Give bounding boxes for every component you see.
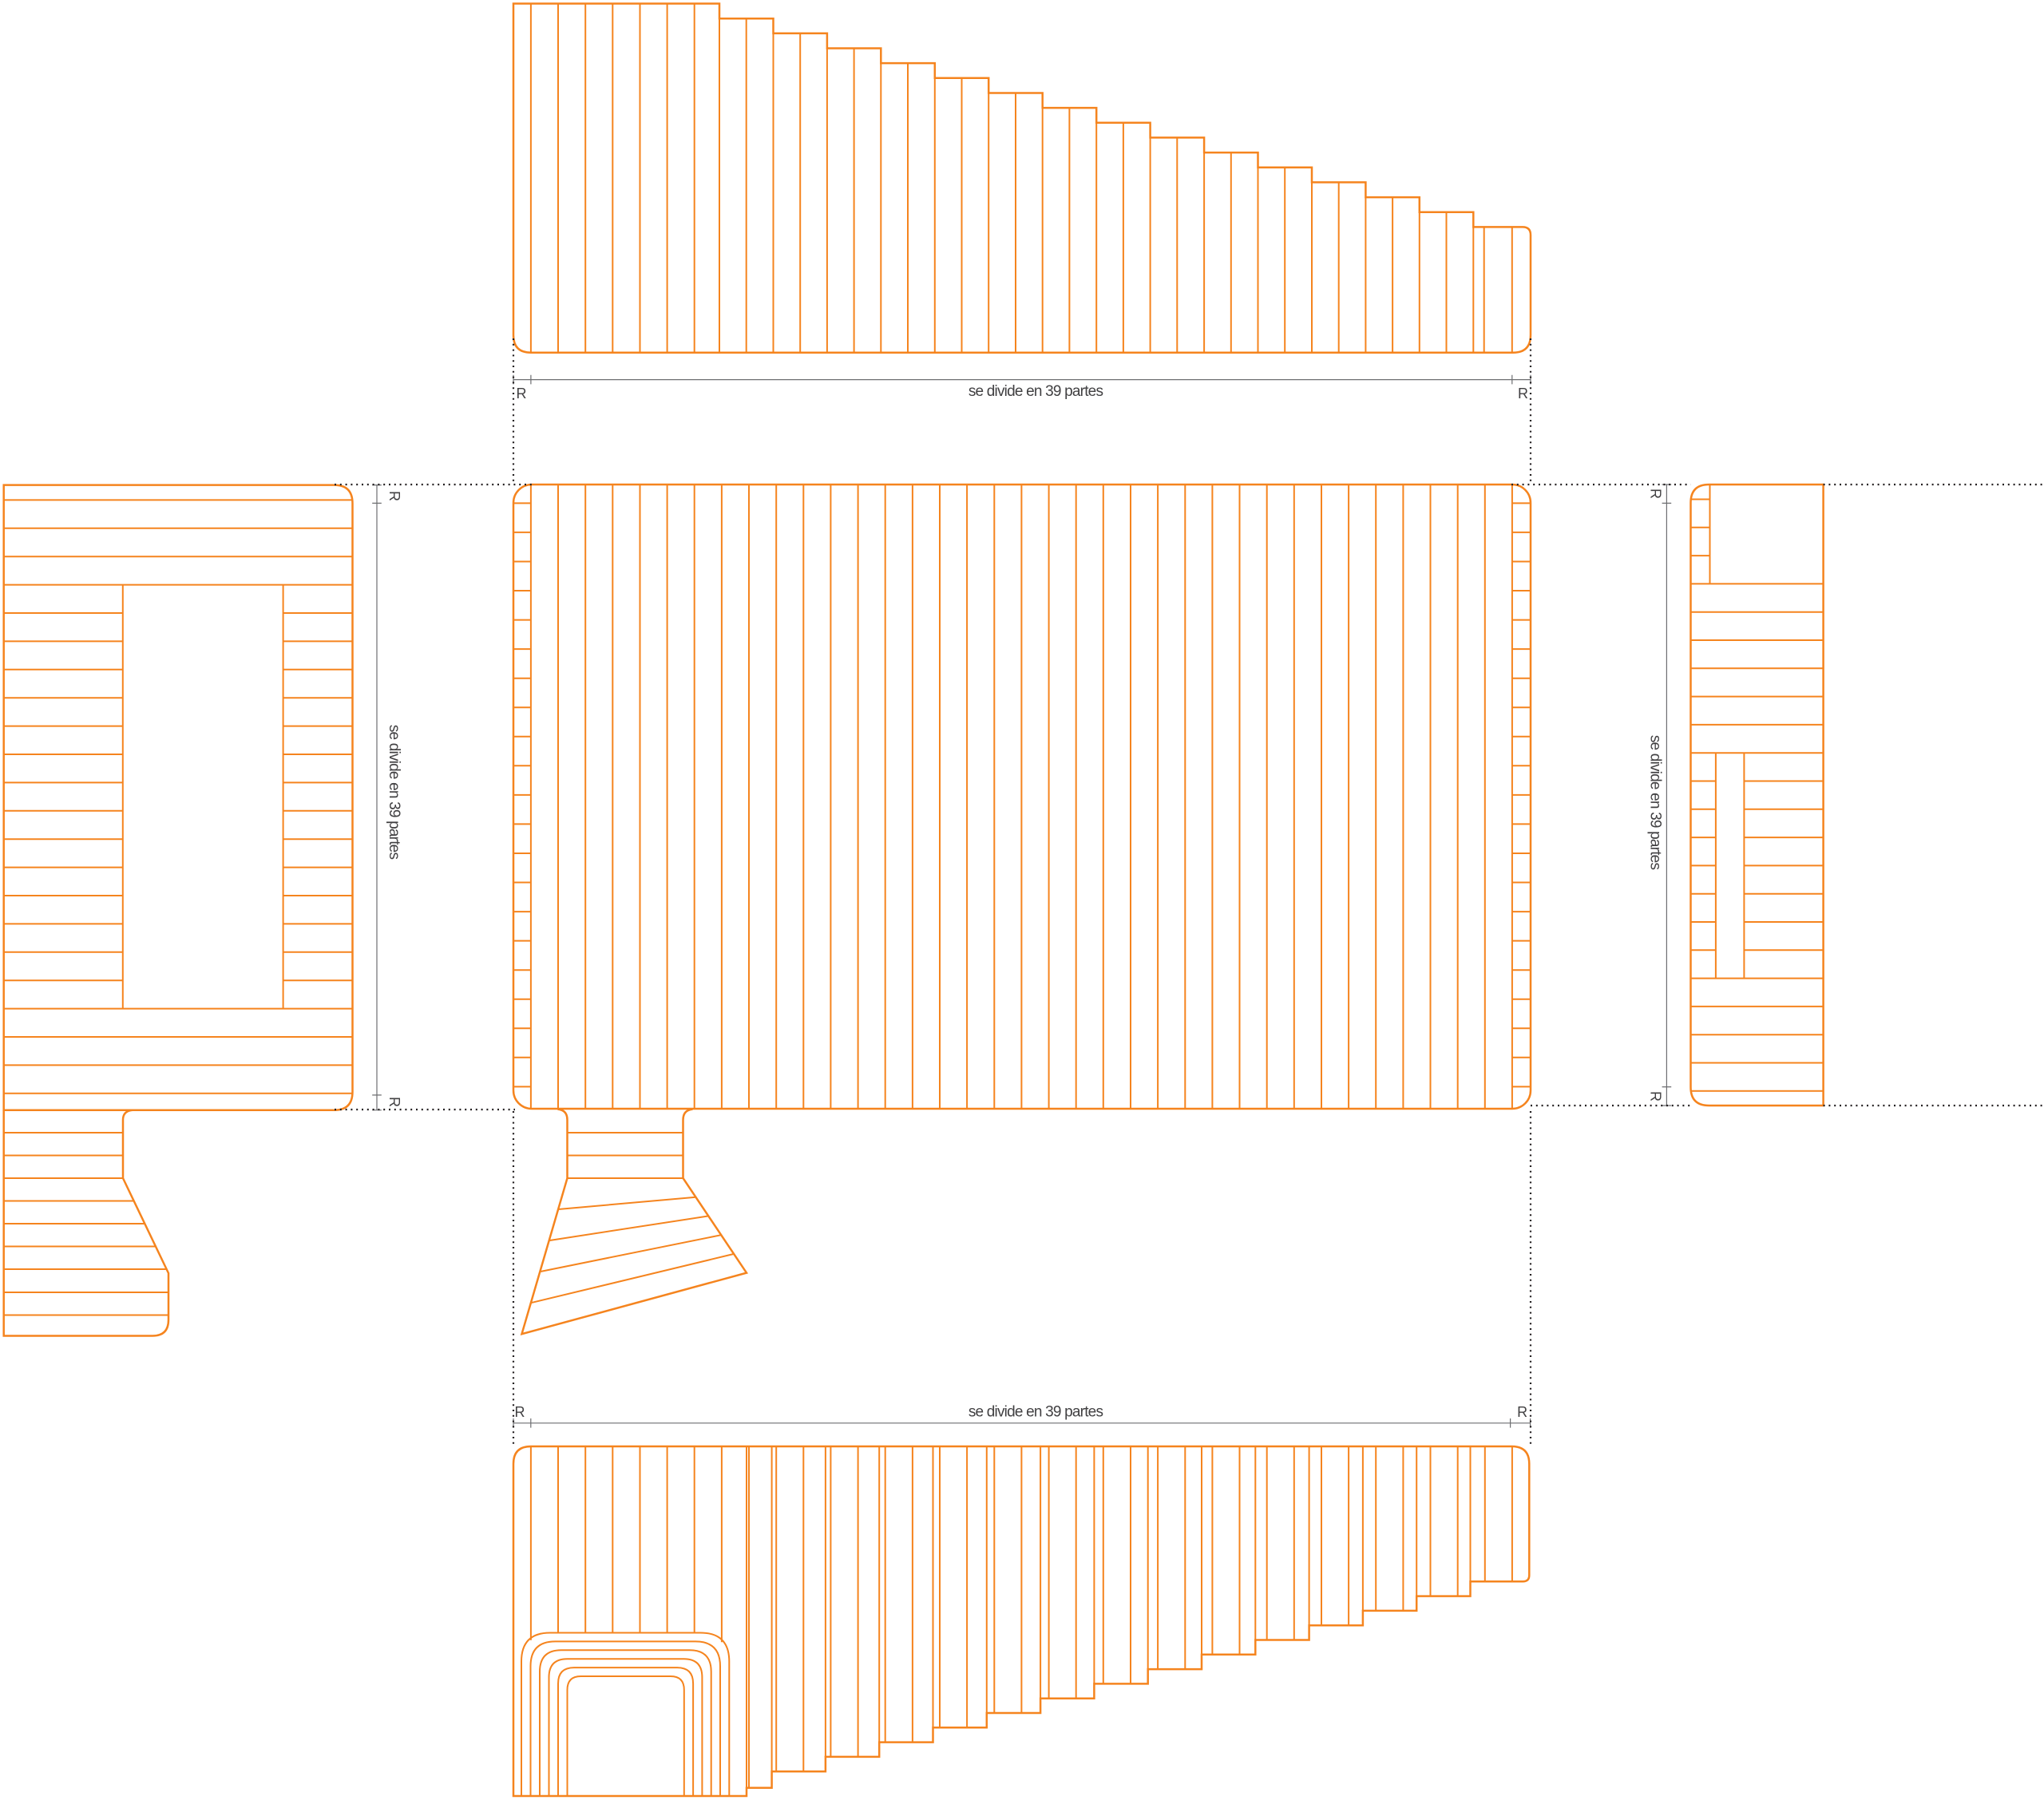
svg-text:se divide en 39 partes: se divide en 39 partes: [969, 383, 1103, 400]
svg-text:R: R: [1648, 489, 1664, 499]
svg-text:se divide en 39 partes: se divide en 39 partes: [386, 725, 402, 860]
svg-text:R: R: [1648, 1091, 1664, 1102]
svg-text:R: R: [515, 1404, 525, 1420]
svg-text:R: R: [1518, 386, 1528, 402]
svg-text:R: R: [1517, 1404, 1527, 1420]
svg-text:se divide en 39 partes: se divide en 39 partes: [1647, 735, 1664, 870]
svg-text:R: R: [386, 491, 402, 501]
svg-text:R: R: [386, 1097, 402, 1107]
svg-text:R: R: [517, 386, 527, 402]
svg-text:se divide en 39 partes: se divide en 39 partes: [969, 1404, 1103, 1421]
